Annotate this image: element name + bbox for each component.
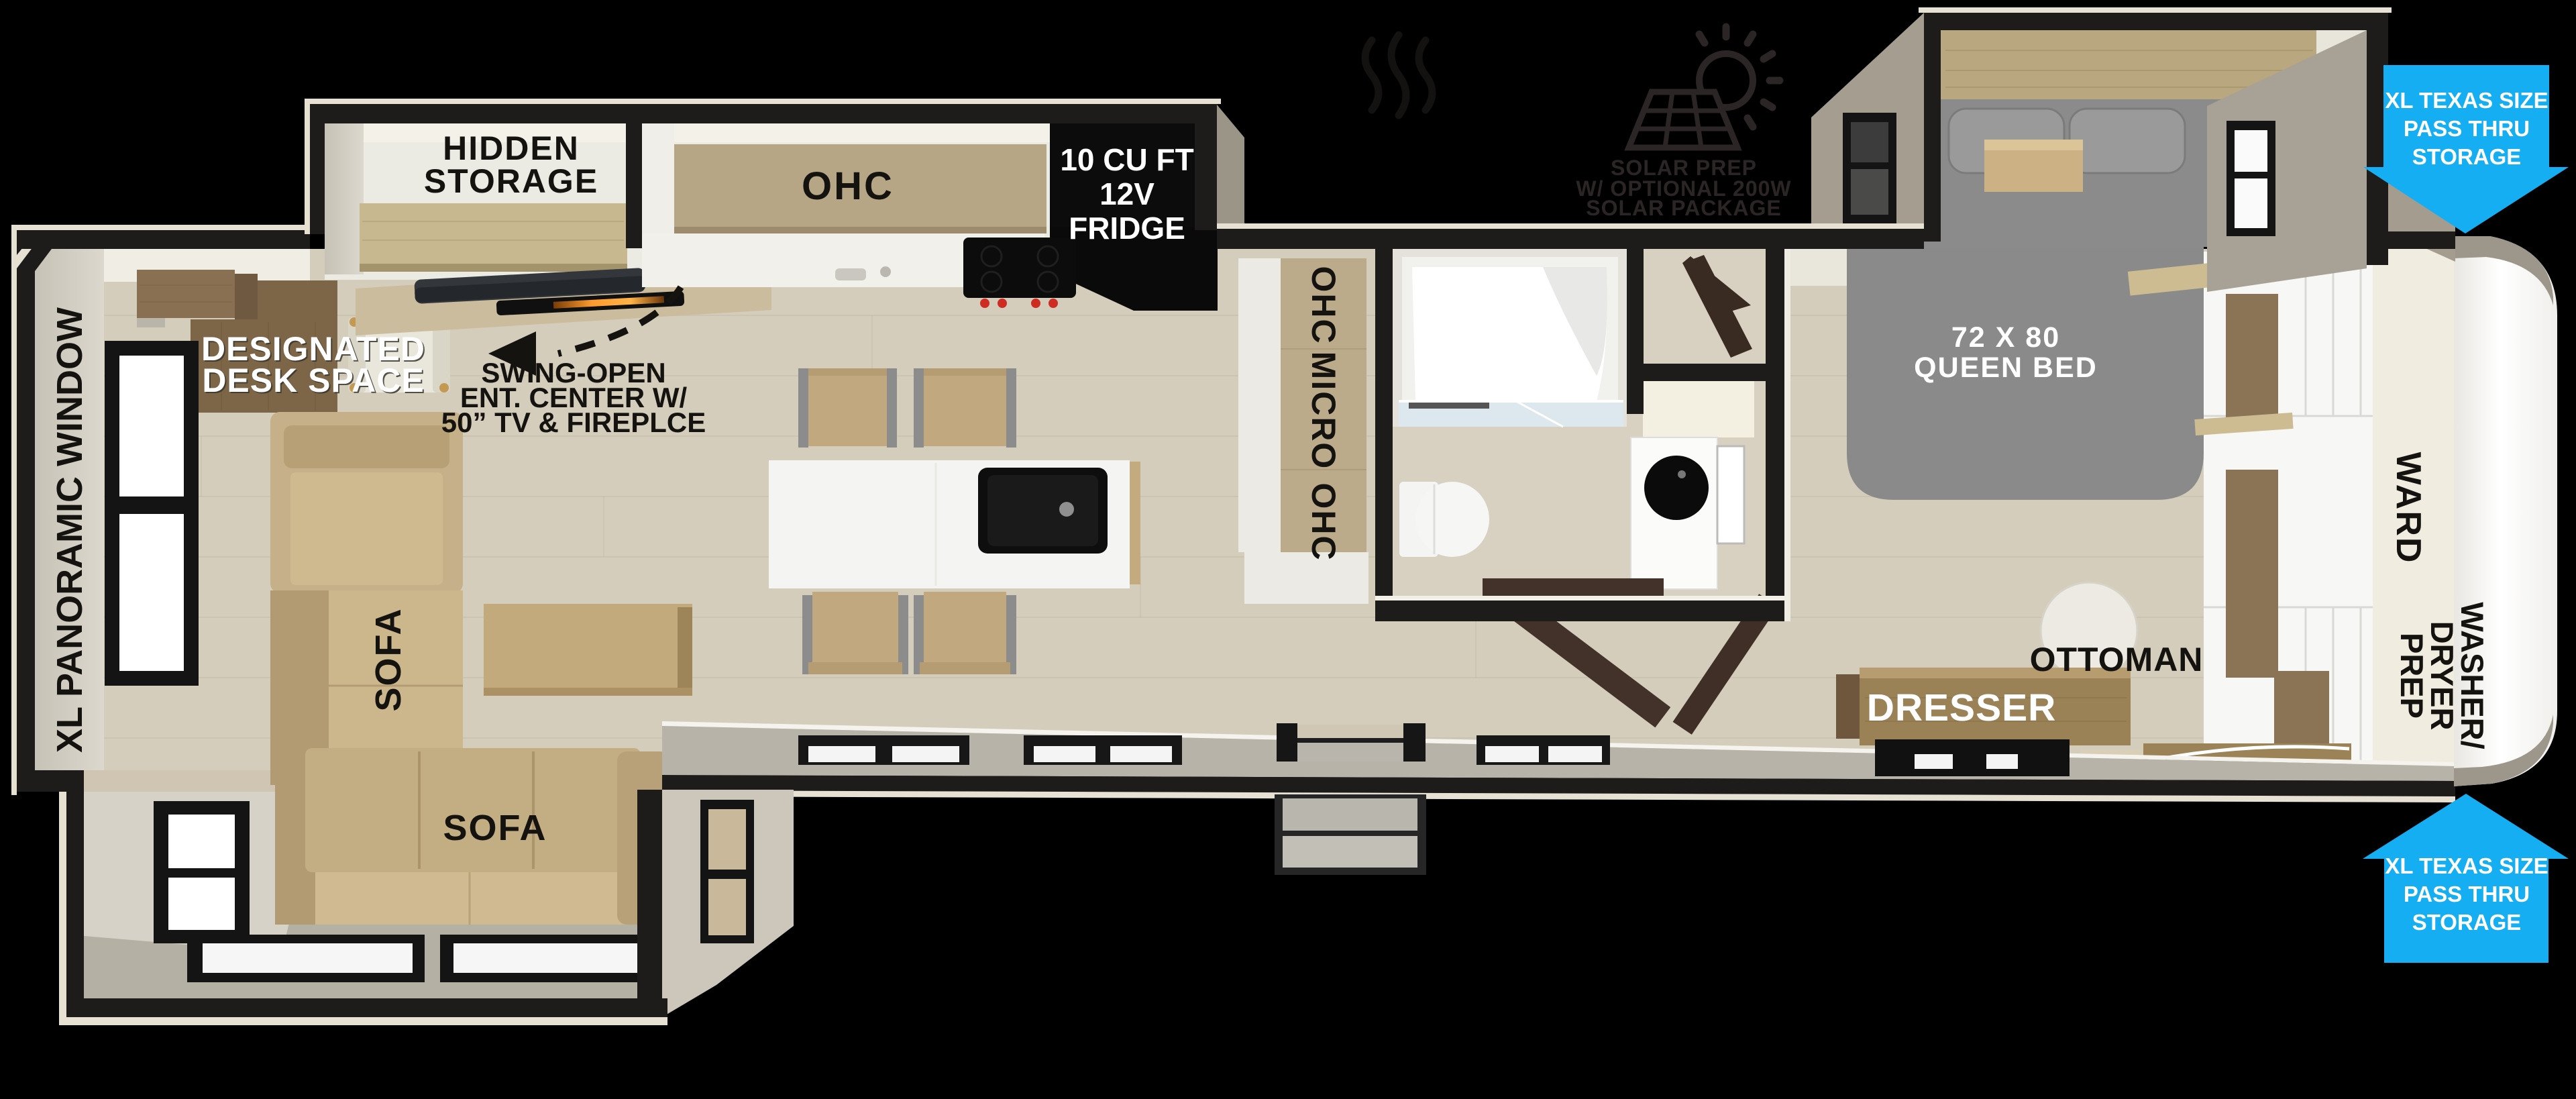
- svg-text:STORAGE: STORAGE: [2412, 910, 2522, 935]
- svg-text:PASS THRU: PASS THRU: [2404, 882, 2530, 906]
- svg-text:OTTOMAN: OTTOMAN: [2030, 641, 2204, 678]
- svg-text:XL PANORAMIC WINDOW: XL PANORAMIC WINDOW: [50, 307, 90, 753]
- svg-text:SOFA: SOFA: [443, 808, 547, 848]
- svg-text:72 X 80: 72 X 80: [1951, 321, 2060, 354]
- svg-text:HIDDEN: HIDDEN: [443, 129, 580, 167]
- svg-text:SOFA: SOFA: [368, 607, 409, 711]
- svg-text:50” TV & FIREPLCE: 50” TV & FIREPLCE: [441, 407, 706, 438]
- svg-text:10 CU FT: 10 CU FT: [1060, 142, 1193, 177]
- svg-text:OHC: OHC: [1305, 482, 1342, 561]
- svg-text:DESK SPACE: DESK SPACE: [202, 362, 424, 399]
- svg-text:DRESSER: DRESSER: [1867, 686, 2057, 729]
- svg-text:OHC: OHC: [802, 164, 894, 208]
- svg-text:XL TEXAS SIZE: XL TEXAS SIZE: [2385, 853, 2548, 878]
- svg-text:XL TEXAS SIZE: XL TEXAS SIZE: [2385, 88, 2548, 113]
- svg-text:STORAGE: STORAGE: [2412, 144, 2522, 169]
- svg-text:STORAGE: STORAGE: [424, 162, 598, 200]
- svg-text:SOLAR PACKAGE: SOLAR PACKAGE: [1586, 196, 1782, 220]
- svg-text:OHC: OHC: [1305, 266, 1342, 344]
- svg-text:QUEEN BED: QUEEN BED: [1914, 352, 2098, 384]
- svg-text:WARD: WARD: [2389, 452, 2428, 564]
- svg-text:12V: 12V: [1099, 176, 1155, 211]
- svg-text:PASS THRU: PASS THRU: [2404, 116, 2530, 141]
- svg-text:FRIDGE: FRIDGE: [1069, 211, 1185, 246]
- svg-text:MICRO: MICRO: [1305, 352, 1342, 470]
